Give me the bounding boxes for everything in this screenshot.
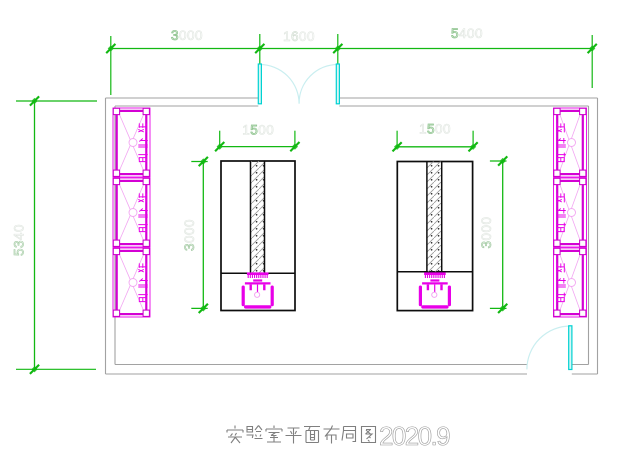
svg-text:3000: 3000 bbox=[171, 28, 203, 43]
svg-text:3000: 3000 bbox=[182, 219, 197, 251]
svg-text:1500: 1500 bbox=[419, 121, 451, 136]
svg-text:5340: 5340 bbox=[11, 224, 26, 256]
svg-text:3000: 3000 bbox=[478, 216, 493, 248]
svg-text:1500: 1500 bbox=[242, 122, 274, 137]
svg-text:5400: 5400 bbox=[451, 26, 483, 41]
svg-text:2020.9: 2020.9 bbox=[379, 421, 450, 451]
svg-text:1600: 1600 bbox=[283, 29, 315, 44]
